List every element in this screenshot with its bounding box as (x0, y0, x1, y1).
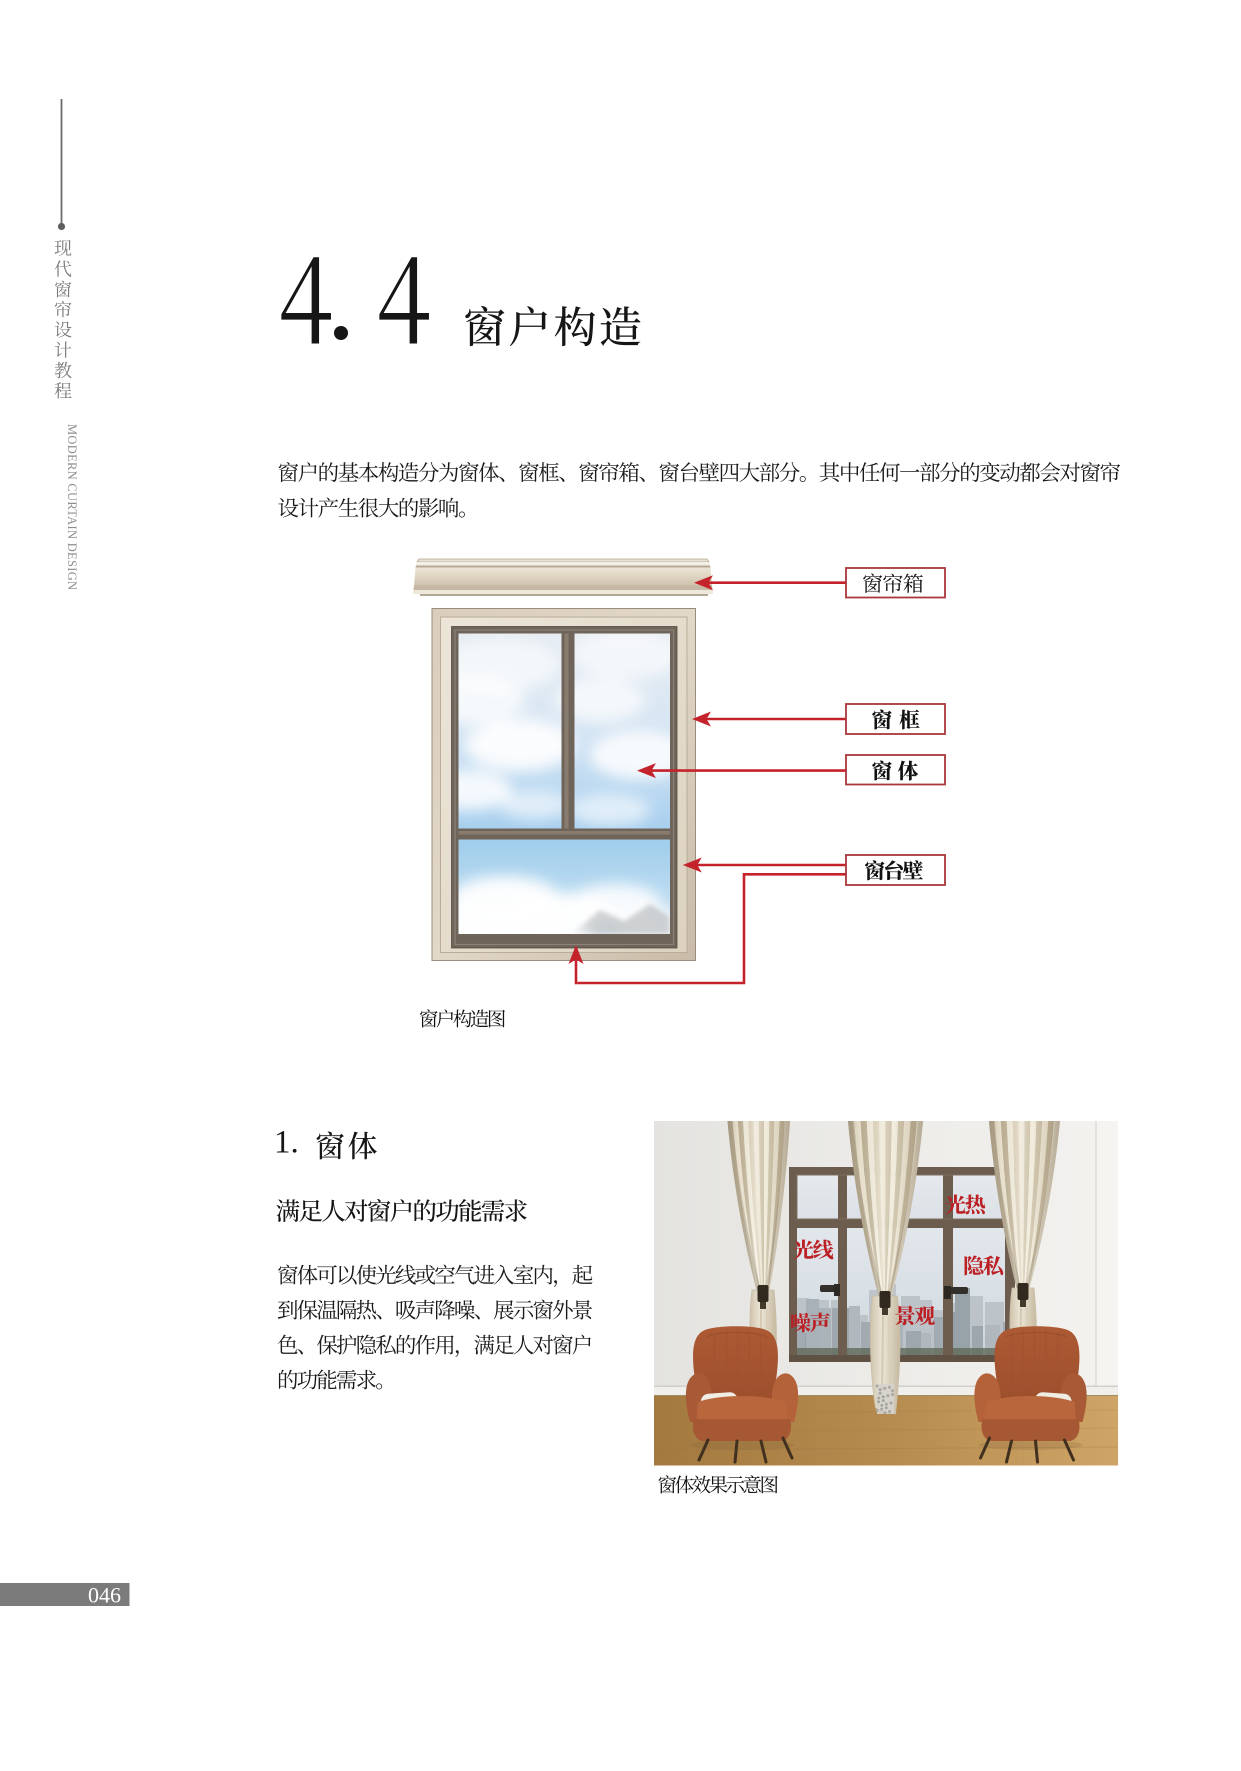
svg-text:1.: 1. (274, 1125, 299, 1161)
svg-text:046: 046 (88, 1583, 121, 1608)
svg-text:MODERN CURTAIN DESIGN: MODERN CURTAIN DESIGN (65, 424, 79, 590)
